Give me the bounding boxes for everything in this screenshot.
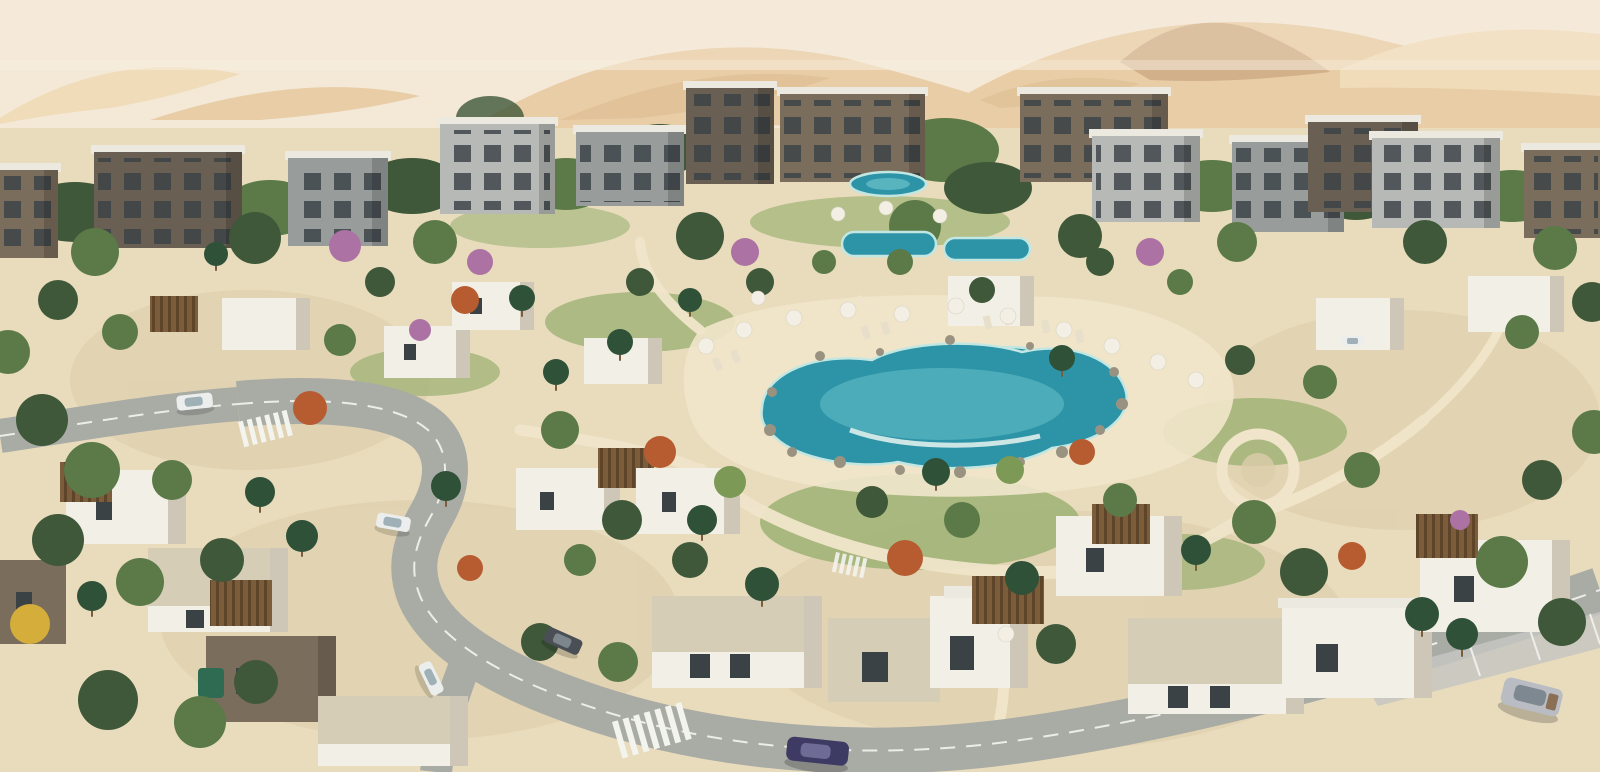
tree <box>229 212 281 264</box>
tree <box>541 411 579 449</box>
tree <box>16 394 68 446</box>
umbrella <box>1150 354 1166 370</box>
autumn-tree <box>293 391 327 425</box>
flowering-tree <box>329 230 361 262</box>
tree <box>856 486 888 518</box>
umbrella <box>786 310 802 326</box>
rock <box>815 351 825 361</box>
tree <box>672 542 708 578</box>
umbrella <box>736 322 752 338</box>
rock <box>876 348 884 356</box>
tree <box>944 502 980 538</box>
villa <box>652 596 822 688</box>
tree <box>234 660 278 704</box>
tree <box>78 670 138 730</box>
apartment-block <box>1521 143 1600 238</box>
tree <box>602 500 642 540</box>
pool-highlight <box>866 178 910 190</box>
umbrella <box>840 302 856 318</box>
rock <box>945 335 955 345</box>
yellow-tree <box>10 604 50 644</box>
apartment-block <box>1089 129 1203 222</box>
tree <box>1403 220 1447 264</box>
tree <box>944 162 1032 214</box>
apartment-block <box>777 87 928 182</box>
autumn-tree <box>1069 439 1095 465</box>
umbrella <box>1188 372 1204 388</box>
flowering-tree <box>467 249 493 275</box>
villa <box>1056 504 1182 596</box>
tree <box>174 696 226 748</box>
flowering-tree <box>731 238 759 266</box>
tree <box>1533 226 1577 270</box>
tree <box>64 442 120 498</box>
rock <box>1095 425 1105 435</box>
flowering-tree <box>409 319 431 341</box>
plunge-pool <box>198 668 224 698</box>
tree <box>1103 483 1137 517</box>
tree <box>887 249 913 275</box>
tree <box>38 280 78 320</box>
aerial-render-image <box>0 0 1600 772</box>
apartment-block <box>437 117 558 214</box>
autumn-tree <box>887 540 923 576</box>
tree <box>1476 536 1528 588</box>
autumn-tree <box>451 286 479 314</box>
umbrella <box>894 306 910 322</box>
tree <box>152 460 192 500</box>
tree <box>1344 452 1380 488</box>
tree <box>102 314 138 350</box>
tree <box>1505 315 1539 349</box>
autumn-tree <box>644 436 676 468</box>
villa <box>1128 618 1304 714</box>
render-canvas <box>0 0 1600 772</box>
tree <box>564 544 596 576</box>
pool-highlight <box>820 368 1064 440</box>
apartment-block <box>91 145 245 248</box>
tree <box>969 277 995 303</box>
tree <box>676 212 724 260</box>
rock <box>834 456 846 468</box>
tree <box>598 642 638 682</box>
umbrella <box>1104 338 1120 354</box>
umbrella <box>948 298 964 314</box>
tree <box>32 514 84 566</box>
umbrella <box>1000 308 1016 324</box>
villa <box>318 696 468 766</box>
rock <box>1109 367 1119 377</box>
umbrella <box>933 209 947 223</box>
rock <box>1056 446 1068 458</box>
tree <box>116 558 164 606</box>
tree <box>365 267 395 297</box>
tree <box>71 228 119 276</box>
autumn-tree <box>457 555 483 581</box>
car-white <box>1342 336 1364 346</box>
flowering-tree <box>1136 238 1164 266</box>
tree <box>812 250 836 274</box>
tree <box>1225 345 1255 375</box>
umbrella <box>751 291 765 305</box>
rock <box>954 466 966 478</box>
rock <box>787 447 797 457</box>
tree <box>200 538 244 582</box>
tree <box>413 220 457 264</box>
apartment-block <box>1369 131 1503 228</box>
pergola <box>150 296 198 332</box>
rock <box>1026 342 1034 350</box>
flowering-tree <box>1450 510 1470 530</box>
tree <box>1538 598 1586 646</box>
pergola <box>210 580 272 626</box>
apartment-block <box>0 163 61 258</box>
rock <box>1116 398 1128 410</box>
tree <box>1303 365 1337 399</box>
tree <box>996 456 1024 484</box>
tree <box>1232 500 1276 544</box>
autumn-tree <box>1338 542 1366 570</box>
umbrella <box>698 338 714 354</box>
rock <box>895 465 905 475</box>
tree <box>324 324 356 356</box>
tree <box>626 268 654 296</box>
tree <box>714 466 746 498</box>
umbrella <box>831 207 845 221</box>
rock <box>764 424 776 436</box>
tree <box>1217 222 1257 262</box>
umbrella <box>1056 322 1072 338</box>
tree <box>1167 269 1193 295</box>
apartment-block <box>573 125 687 206</box>
umbrella <box>879 201 893 215</box>
pool-small <box>842 232 936 256</box>
haze <box>0 0 1600 70</box>
plaza-center <box>1241 453 1275 487</box>
tree <box>1522 460 1562 500</box>
tree <box>1036 624 1076 664</box>
pool-small <box>944 238 1030 260</box>
apartment-block <box>683 81 777 184</box>
tree <box>1086 248 1114 276</box>
rock <box>767 387 777 397</box>
umbrella <box>998 626 1014 642</box>
tree <box>1280 548 1328 596</box>
